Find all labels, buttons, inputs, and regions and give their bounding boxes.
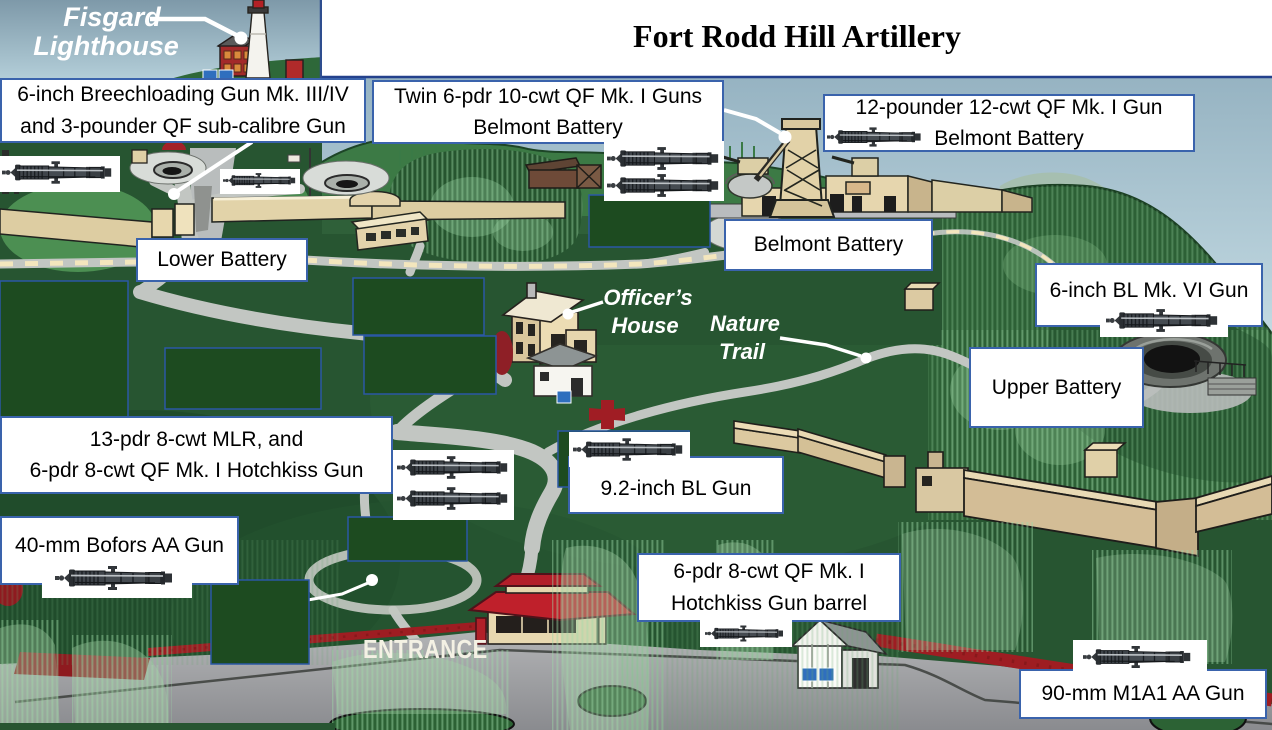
svg-text:Lighthouse: Lighthouse [33,31,178,61]
svg-text:Officer’s: Officer’s [603,285,692,310]
svg-text:Nature: Nature [710,311,780,336]
svg-text:ENTRANCE: ENTRANCE [363,635,488,664]
svg-text:House: House [611,313,678,338]
svg-text:Trail: Trail [719,339,766,364]
svg-text:Fisgard: Fisgard [63,2,161,32]
